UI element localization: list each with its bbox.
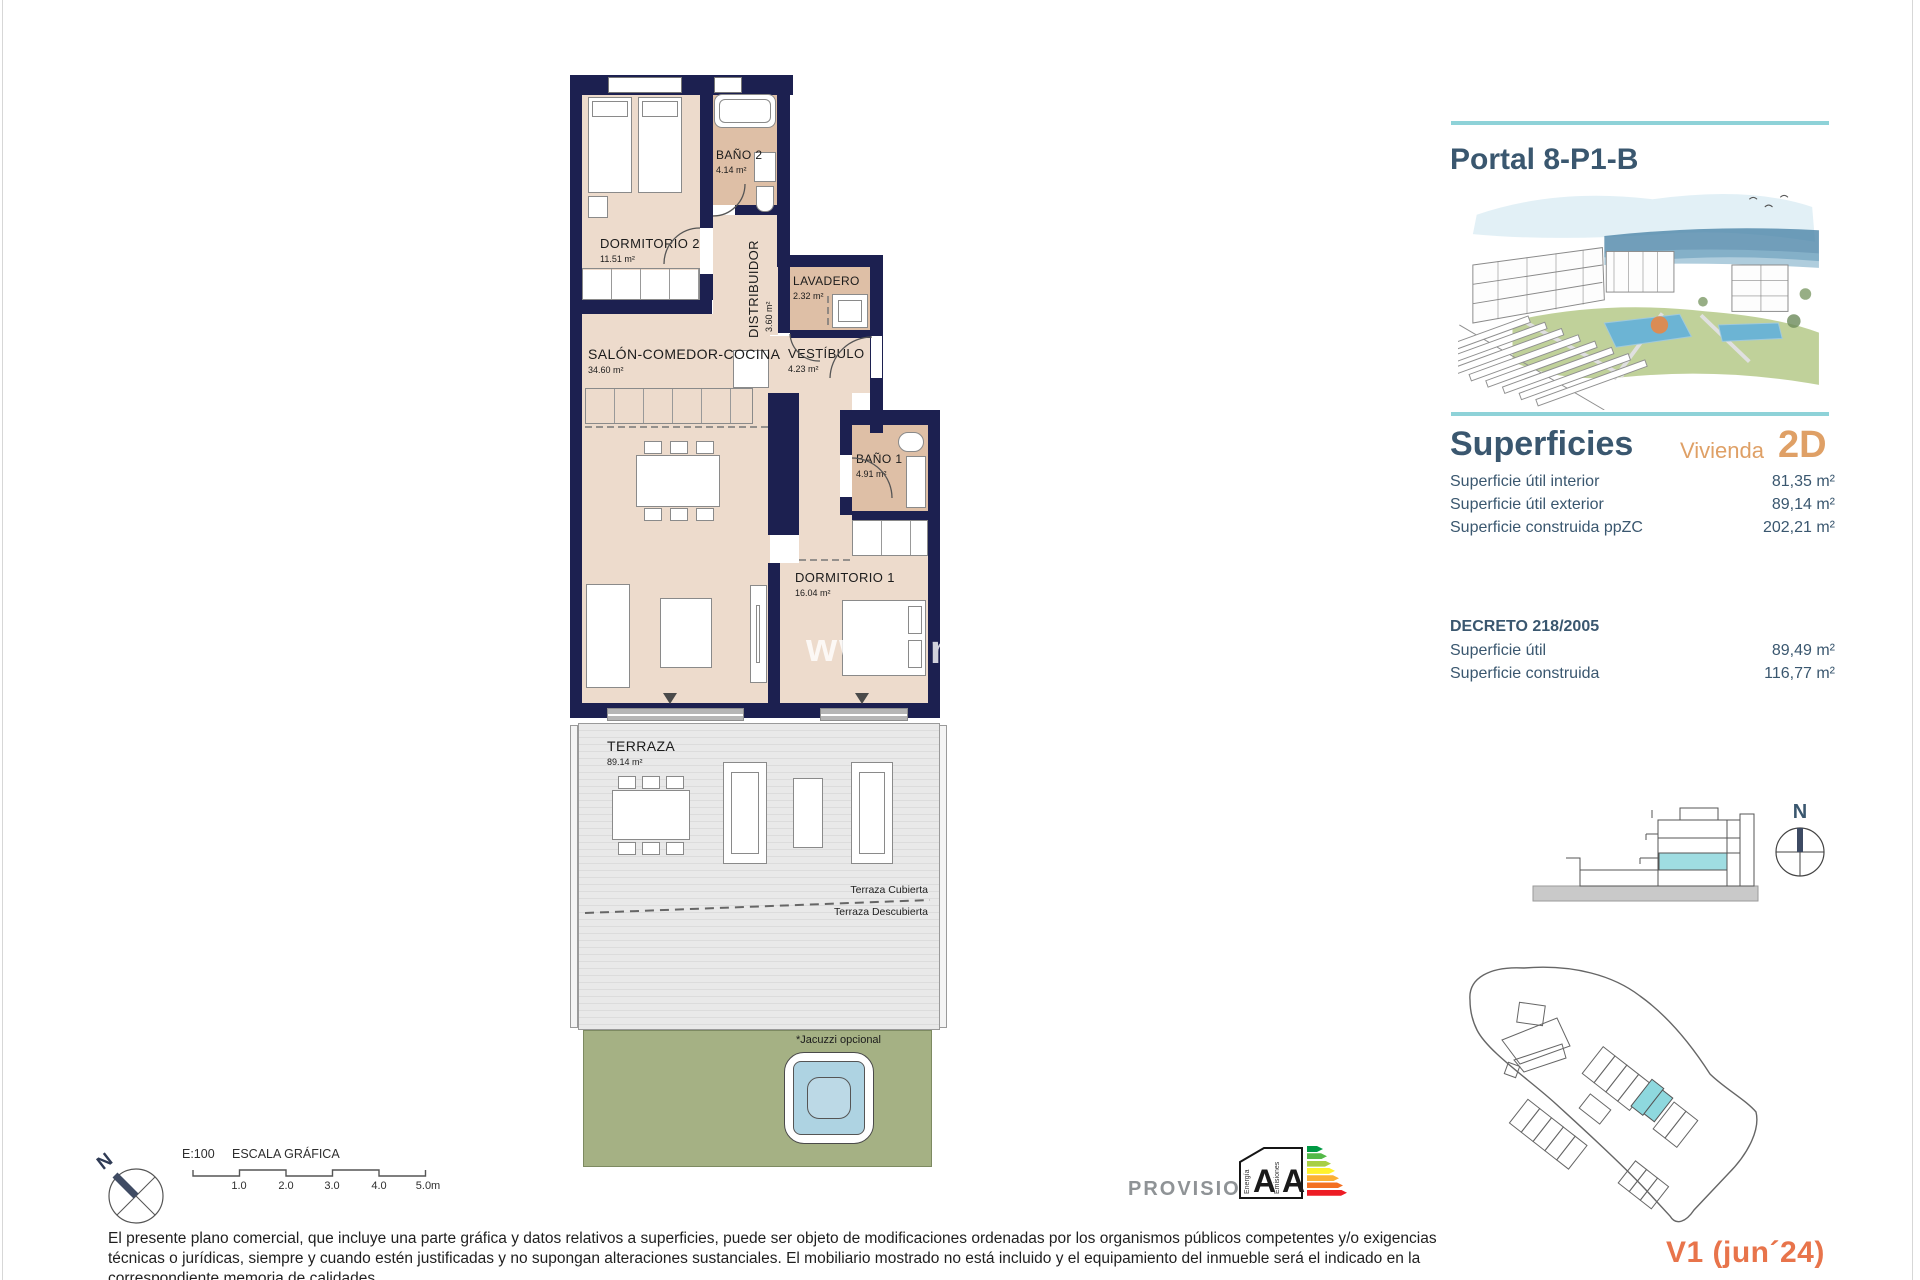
- surface-row: Superficie construida ppZC 202,21 m²: [1450, 519, 1835, 537]
- energy-letter-right: A: [1282, 1163, 1305, 1199]
- terrace-divider-line: [585, 900, 930, 913]
- plan-overlay: [570, 70, 950, 1180]
- site-plan: [1462, 960, 1762, 1235]
- highlighted-floor: [1659, 853, 1727, 870]
- scale-tick: 2.0: [278, 1180, 293, 1192]
- plan-compass-n: N: [93, 1149, 117, 1174]
- disclaimer: El presente plano comercial, que incluye…: [108, 1229, 1437, 1280]
- brochure-page: Terraza Cubierta Terraza Descubierta *Ja…: [0, 0, 1920, 1280]
- energy-letter-left: A: [1253, 1163, 1276, 1199]
- scale-tick: 5.0m: [416, 1180, 440, 1192]
- vivienda-type: 2D: [1778, 424, 1827, 467]
- energy-arrow: [1307, 1175, 1339, 1181]
- page-title: Portal 8-P1-B: [1450, 143, 1638, 177]
- energy-house-icon: Energía A Emisiones A: [1236, 1144, 1306, 1202]
- scale-label: ESCALA GRÁFICA: [232, 1147, 340, 1161]
- door-arrow-icon: [663, 693, 677, 704]
- energy-arrows: [1307, 1146, 1347, 1197]
- energy-arrow: [1307, 1168, 1335, 1174]
- energy-arrow: [1307, 1161, 1331, 1167]
- teal-rule-top: [1451, 121, 1829, 125]
- energy-left-label: Energía: [1244, 1169, 1251, 1194]
- compass-icon: N: [1765, 800, 1835, 890]
- project-illustration: [1458, 178, 1828, 410]
- compass-n-label: N: [1793, 801, 1807, 823]
- surfaces-heading: Superficies: [1450, 425, 1633, 464]
- surface-row: Superficie útil interior 81,35 m²: [1450, 473, 1835, 491]
- scale-ratio: E:100: [182, 1147, 215, 1161]
- page-right-border: [1912, 0, 1913, 1280]
- scale-tick: 1.0: [231, 1180, 246, 1192]
- energy-right-label: Emisiones: [1274, 1161, 1281, 1194]
- version-tag: V1 (jun´24): [1666, 1236, 1825, 1270]
- teal-rule-mid: [1451, 412, 1829, 416]
- scale-tick: 4.0: [371, 1180, 386, 1192]
- building-section-diagram: [1528, 798, 1763, 906]
- energy-arrow: [1307, 1146, 1323, 1152]
- door-arrow-icon: [855, 693, 869, 704]
- plan-compass-icon: N: [88, 1146, 188, 1238]
- scale-tick: 3.0: [324, 1180, 339, 1192]
- surface-row: Superficie útil exterior 89,14 m²: [1450, 496, 1835, 514]
- page-left-border: [2, 0, 3, 1280]
- energy-arrow: [1307, 1153, 1327, 1159]
- vivienda-label: Vivienda: [1680, 438, 1764, 464]
- decreto-row: Superficie construida 116,77 m²: [1450, 665, 1835, 683]
- scale-bar: [185, 1160, 435, 1186]
- decreto-row: Superficie útil 89,49 m²: [1450, 642, 1835, 660]
- energy-arrow: [1307, 1190, 1347, 1196]
- energy-arrow: [1307, 1182, 1343, 1188]
- decreto-heading: DECRETO 218/2005: [1450, 618, 1599, 636]
